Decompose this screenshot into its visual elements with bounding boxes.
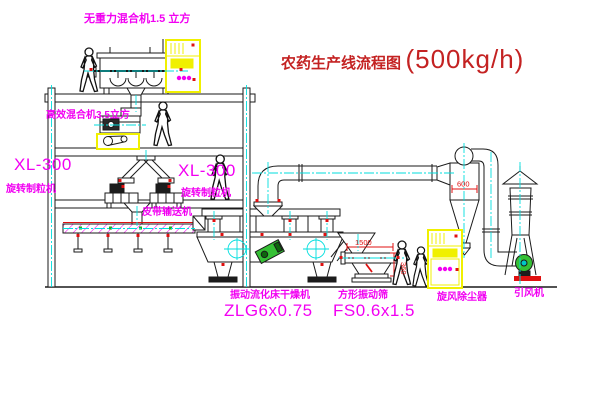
label-screen-name: 方形振动筛	[338, 291, 388, 301]
cabinet-knobs	[177, 76, 191, 80]
label-fan: 引风机	[514, 289, 544, 299]
label-granulator-left: 旋转制粒机	[6, 185, 56, 195]
cyclone-width-dim: 600	[457, 180, 470, 189]
diagram-title: 农药生产线流程图 (500kg/h)	[281, 44, 524, 75]
label-cyclone: 旋风除尘器	[437, 293, 487, 303]
exhaust-duct-drawing	[254, 164, 437, 216]
label-zero-gravity-mixer: 无重力混合机1.5 立方	[84, 14, 190, 25]
belt-conveyor-drawing	[63, 223, 195, 253]
label-xl300-right: XL-300	[178, 162, 236, 179]
label-belt-conveyor: 皮带输送机	[142, 208, 192, 218]
screen-height-dim: 360	[399, 262, 408, 275]
label-dryer-name: 振动流化床干燥机	[230, 291, 310, 301]
cabinet-knobs	[438, 267, 452, 271]
person-figure	[413, 247, 429, 286]
y-chute-drawing	[118, 156, 174, 183]
control-cabinet-icon	[166, 40, 200, 92]
screen-length-dim: 1500	[355, 238, 372, 247]
label-dryer-model: ZLG6x0.75	[224, 302, 313, 319]
title-text: 农药生产线流程图	[281, 55, 401, 72]
label-high-efficiency-mixer: 高效混合机3.5立方	[46, 111, 130, 121]
label-screen-model: FS0.6x1.5	[333, 302, 415, 319]
title-capacity: (500kg/h)	[405, 44, 524, 74]
induced-draft-fan-icon	[514, 255, 541, 282]
dryer-ports	[206, 216, 335, 232]
control-cabinet-icon	[428, 230, 462, 288]
pesticide-line-flow-diagram: 1500 360 600 农药生产线流程图 (500kg/h) 无重力混合机1.…	[0, 0, 600, 403]
person-figure	[154, 102, 172, 146]
label-granulator-right: 旋转制粒机	[181, 189, 231, 199]
label-xl300-left: XL-300	[14, 156, 72, 173]
